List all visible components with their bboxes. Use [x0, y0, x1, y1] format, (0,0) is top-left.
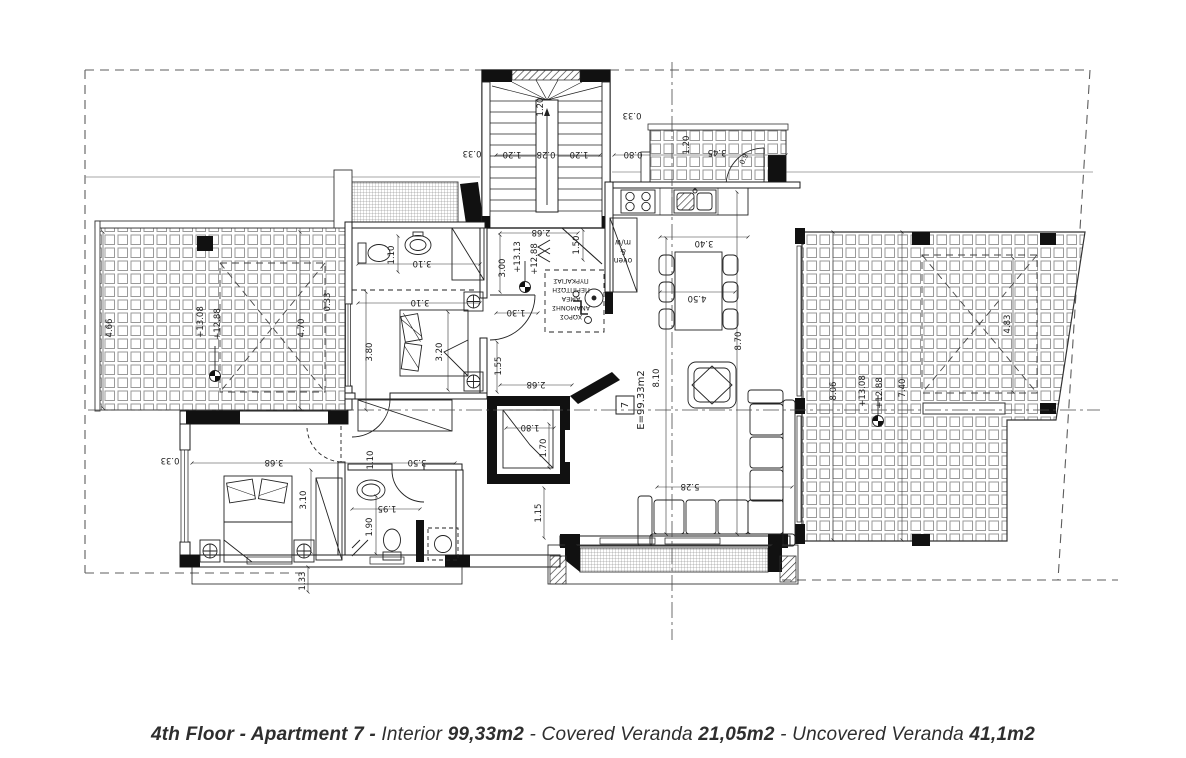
window: [370, 557, 404, 564]
plan-caption: 4th Floor - Apartment 7 - Interior 99,33…: [0, 724, 1186, 746]
dimension-label: 4.66: [105, 319, 115, 338]
column: [912, 232, 930, 245]
dimension-label: 7.40: [898, 379, 908, 398]
door-arc: [307, 426, 341, 462]
window: [797, 246, 801, 396]
dimension-label: 0.80: [624, 149, 643, 159]
dimension-label: 1.33: [298, 572, 308, 591]
dimension-label: 3.10: [299, 491, 309, 510]
elevator: [487, 396, 572, 484]
dimension-label: 4.70: [297, 319, 307, 338]
dimension-label: 1.80: [521, 422, 540, 432]
dimension-label: 1.70: [539, 439, 549, 458]
dimension-label: 1.55: [494, 357, 504, 376]
dimension-label: +13.13: [513, 241, 523, 272]
dimension-label: m/w: [615, 238, 631, 247]
caption-part: Uncovered Veranda: [792, 724, 969, 745]
floor-plan-svg: 7 E=99.33m2: [0, 0, 1186, 758]
dimension-label: +12.88: [213, 308, 223, 339]
dimension-label: +12.88: [875, 377, 885, 408]
dimension-label: +12.88: [530, 243, 540, 274]
dimension-label: 4.83: [1003, 315, 1013, 334]
dimension-label: 5.28: [681, 481, 700, 491]
dimension-label: 3.68: [265, 457, 284, 467]
dimension-label: 0.33: [161, 455, 180, 465]
dimension-label: ΠΥΡΚΑΓΙΑΣ: [553, 277, 589, 285]
uncovered-veranda-right: [802, 232, 1085, 546]
dimension-label: 3.20: [435, 343, 445, 362]
dimension-label: 0.33: [323, 293, 333, 312]
dimension-label: 1.95: [378, 503, 397, 513]
dimension-label: 1.15: [534, 504, 544, 523]
dimension-label: +13.08: [858, 375, 868, 406]
caption-part: Covered Veranda: [542, 724, 699, 745]
dimension-label: 1.20: [536, 98, 546, 117]
column: [1040, 403, 1056, 414]
dimension-label: 2.68: [532, 227, 551, 237]
living-room: [638, 362, 795, 546]
top-planter: [334, 170, 484, 228]
dimension-label: 1.20: [570, 149, 589, 159]
dimension-label: oven: [614, 256, 633, 265]
dimension-label: 3.00: [498, 259, 508, 278]
armchair: [688, 362, 736, 408]
dimension-label: 8.70: [734, 332, 744, 351]
dimension-label: 1.20: [503, 149, 522, 159]
dimension-label: 1.50: [572, 236, 582, 255]
dimension-label: 1.10: [366, 451, 376, 470]
apartment-number: 7: [620, 402, 631, 408]
dimension-label: 0.33: [463, 148, 482, 158]
dimension-label: 3.40: [695, 238, 714, 248]
dimension-label: 0.33: [623, 110, 642, 120]
dimension-label: 8.10: [652, 369, 662, 388]
dimension-label: ΑΝΑΜΟΝΗΣ: [552, 304, 590, 312]
dimension-label: +13.08: [196, 306, 206, 337]
door-arc: [392, 470, 424, 502]
bathroom-2: [352, 470, 458, 560]
column: [912, 534, 930, 546]
dimension-label: 0.28: [537, 149, 556, 159]
dimension-label: &: [620, 247, 626, 256]
window: [665, 538, 720, 544]
caption-part: 21,05m2: [698, 724, 774, 745]
bedroom-2: [200, 426, 342, 562]
dimension-label: ΑΜΕΑ: [561, 295, 580, 303]
window: [600, 538, 655, 544]
bedroom-1: [352, 292, 483, 437]
entry-door-leaf: [562, 228, 602, 264]
dimension-label: 3.80: [365, 343, 375, 362]
dining-table: [659, 252, 738, 330]
window: [247, 557, 292, 564]
caption-part: -: [775, 724, 793, 745]
dimension-label: 3.10: [413, 258, 432, 268]
caption-part: Interior: [381, 724, 447, 745]
dimension-label: ΧΩΡΟΣ: [560, 313, 583, 321]
dimension-label: ΠΕΡΙΠΤΩΣΗ: [552, 286, 590, 294]
dimension-label: 1.10: [387, 246, 397, 265]
caption-part: 4th Floor - Apartment 7 -: [151, 724, 381, 745]
caption-part: -: [524, 724, 542, 745]
window: [797, 416, 801, 522]
dimension-label: 4.50: [688, 293, 707, 303]
dimension-label: 1.90: [365, 518, 375, 537]
dimension-label: 2.68: [527, 379, 546, 389]
hob: [621, 190, 655, 213]
column: [197, 236, 213, 251]
floor-plan-page: 7 E=99.33m2: [0, 0, 1186, 758]
dimension-label: 3.50: [408, 457, 427, 467]
sink: [674, 189, 716, 213]
dimension-label: 8.06: [829, 382, 839, 401]
dimension-label: 1.30: [507, 307, 526, 317]
apartment-area-label: E=99.33m2: [636, 370, 647, 429]
caption-part: 41,1m2: [969, 724, 1035, 745]
dimension-label: 3.10: [411, 297, 430, 307]
dimension-label: 3.45: [708, 147, 727, 157]
dimension-label: 1.20: [682, 136, 692, 155]
planter-strip: [923, 403, 1005, 414]
corner-sofa: [638, 390, 795, 546]
caption-part: 99,33m2: [448, 724, 524, 745]
column: [1040, 233, 1056, 245]
apartment-label: 7 E=99.33m2: [616, 370, 647, 429]
